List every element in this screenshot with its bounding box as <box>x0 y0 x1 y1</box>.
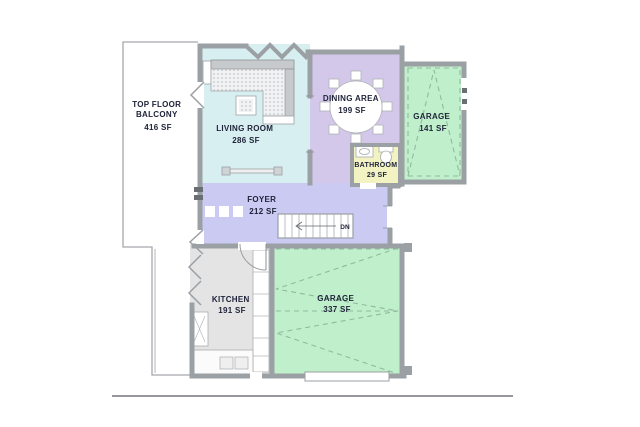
garage-upper-floor <box>402 62 466 184</box>
kitchen-appliance <box>235 357 248 369</box>
hinge-mark <box>462 99 467 104</box>
hinge-mark <box>462 88 467 93</box>
dining-chair <box>329 79 339 88</box>
pilaster <box>404 243 412 252</box>
stair-direction-label: DN <box>340 224 350 231</box>
sofa-back-right <box>285 69 294 118</box>
dining-chair <box>320 102 330 111</box>
opening-kitchen-bottom <box>250 372 262 381</box>
closet-panel <box>219 206 229 217</box>
opening-bathroom-door <box>360 183 376 189</box>
opening-garage-upper-right <box>461 78 468 110</box>
media-console-cap-left <box>222 167 230 175</box>
foyer-closet <box>205 206 243 217</box>
media-console-cap-right <box>274 167 282 175</box>
balcony-outline <box>123 42 198 375</box>
kitchen-appliance <box>220 357 233 369</box>
dining-chair <box>373 125 383 134</box>
dining-chair <box>351 134 361 143</box>
dining-chair <box>373 79 383 88</box>
garage-lower-door-panel <box>305 372 389 381</box>
dining-chair <box>382 102 392 111</box>
opening-foyer-right-door <box>387 206 393 228</box>
hinge-mark <box>194 195 203 200</box>
opening-kitchen-door <box>238 242 266 250</box>
pilaster <box>404 366 412 375</box>
closet-panel <box>233 206 243 217</box>
coffee-table-top <box>239 99 253 112</box>
media-console <box>230 169 274 173</box>
bathroom-sink-bowl <box>360 149 370 155</box>
floor-plan-page: DN TOP FLOOR BALCONY 416 SF LIVING ROOM … <box>0 0 640 427</box>
hinge-mark <box>194 187 203 192</box>
staircase: DN <box>278 214 353 238</box>
sofa-armrest-left <box>203 61 211 84</box>
floor-plan-drawing: DN TOP FLOOR BALCONY 416 SF LIVING ROOM … <box>0 0 640 427</box>
dining-chair <box>351 71 361 80</box>
sofa-back-top <box>211 60 294 69</box>
balcony-label: TOP FLOOR BALCONY 416 SF <box>132 100 184 132</box>
sofa-armrest-bottom <box>263 116 294 124</box>
dining-chair <box>329 125 339 134</box>
closet-panel <box>205 206 215 217</box>
